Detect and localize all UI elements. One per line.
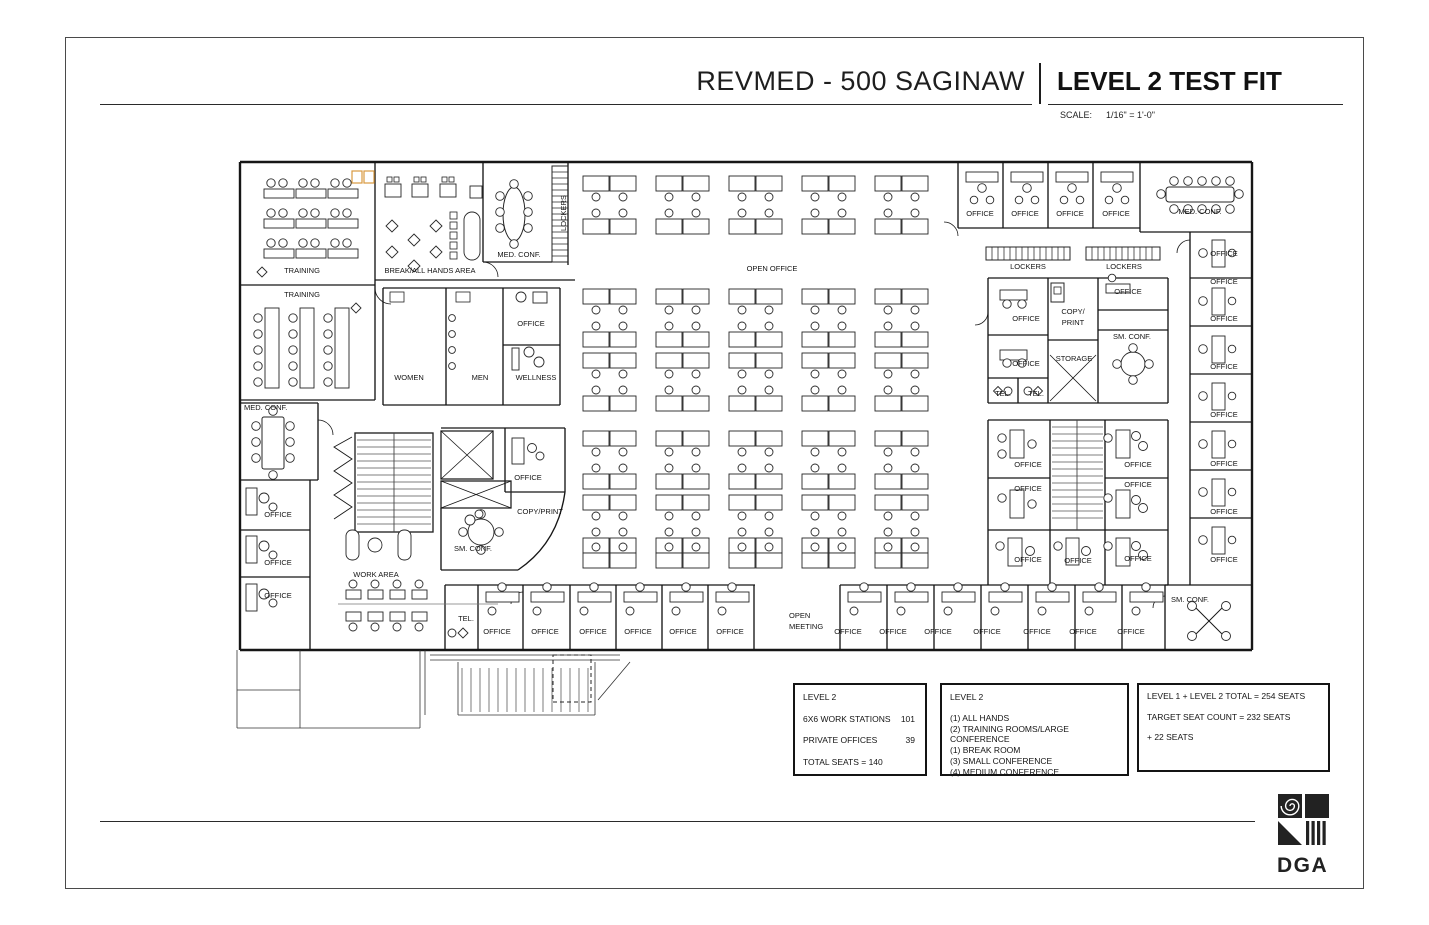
room-label: TRAINING — [284, 290, 320, 299]
row-label: PRIVATE OFFICES — [803, 735, 877, 745]
room-label: MED. CONF. — [244, 403, 287, 412]
room-label: OFFICE — [973, 627, 1001, 636]
room-label: OFFICE — [1210, 555, 1238, 564]
room-label: OFFICE — [1014, 460, 1042, 469]
table-row: 6X6 WORK STATIONS101 — [803, 714, 917, 724]
room-label: OFFICE — [1014, 484, 1042, 493]
table-item: LEVEL 1 + LEVEL 2 TOTAL = 254 SEATS — [1147, 692, 1320, 702]
room-label: OFFICE — [264, 558, 292, 567]
room-label: OFFICE — [1117, 627, 1145, 636]
logo-triangle-icon — [1278, 821, 1302, 845]
room-label: STORAGE — [1056, 354, 1093, 363]
room-label: WOMEN — [394, 373, 424, 382]
room-label: OFFICE — [1064, 556, 1092, 565]
room-label: BREAK/ALL HANDS AREA — [384, 266, 475, 275]
dga-logo-text: DGA — [1277, 854, 1330, 878]
room-label: OFFICE — [716, 627, 744, 636]
table-title: LEVEL 2 — [803, 692, 917, 702]
room-label: OFFICE — [834, 627, 862, 636]
room-label: OFFICE — [483, 627, 511, 636]
room-label: OFFICE — [1102, 209, 1130, 218]
room-label: SM. CONF. — [1113, 332, 1151, 341]
dashed-lines — [553, 655, 591, 702]
table-item: TARGET SEAT COUNT = 232 SEATS — [1147, 713, 1320, 723]
room-label: MED. CONF. — [1178, 207, 1221, 216]
room-label: OPEN — [789, 611, 810, 620]
room-label: OFFICE — [1210, 507, 1238, 516]
room-label: COPY/PRINT — [517, 507, 563, 516]
room-label: LOCKERS — [1106, 262, 1142, 271]
table-total: TOTAL SEATS = 140 — [803, 757, 917, 767]
room-label: WORK AREA — [353, 570, 398, 579]
room-label: COPY/ — [1061, 307, 1085, 316]
room-label: TEL. — [1028, 389, 1044, 398]
room-label: OFFICE — [1012, 314, 1040, 323]
room-label: LOCKERS — [1010, 262, 1046, 271]
room-label: OFFICE — [517, 319, 545, 328]
room-label: OFFICE — [1210, 362, 1238, 371]
footer-rule — [100, 821, 1255, 822]
room-label: SM. CONF. — [454, 544, 492, 553]
room-label: OFFICE — [1012, 359, 1040, 368]
room-label: PRINT — [1062, 318, 1085, 327]
room-label: OFFICE — [1124, 554, 1152, 563]
room-label: OFFICE — [1114, 287, 1142, 296]
table-item: (3) SMALL CONFERENCE — [950, 757, 1119, 767]
room-label: TEL. — [995, 389, 1011, 398]
seat-count-table: LEVEL 26X6 WORK STATIONS101PRIVATE OFFIC… — [793, 683, 927, 776]
room-label: SM. CONF. — [1171, 595, 1209, 604]
table-item: (4) MEDIUM CONFERENCE — [950, 768, 1119, 778]
room-label: MED. CONF. — [497, 250, 540, 259]
row-label: 6X6 WORK STATIONS — [803, 714, 891, 724]
room-label: OFFICE — [1124, 460, 1152, 469]
table-item: (2) TRAINING ROOMS/LARGE CONFERENCE — [950, 725, 1119, 744]
room-label: OFFICE — [1014, 555, 1042, 564]
room-label: WELLNESS — [516, 373, 557, 382]
room-label: OFFICE — [1210, 277, 1238, 286]
room-label: OFFICE — [514, 473, 542, 482]
room-label: OFFICE — [264, 591, 292, 600]
room-label: MEN — [472, 373, 489, 382]
room-label: OFFICE — [1069, 627, 1097, 636]
totals-table: LEVEL 1 + LEVEL 2 TOTAL = 254 SEATSTARGE… — [1137, 683, 1330, 772]
room-label: OFFICE — [1023, 627, 1051, 636]
room-labels: TRAININGTRAININGBREAK/ALL HANDS AREAMED.… — [244, 195, 1238, 636]
room-label: OFFICE — [1056, 209, 1084, 218]
dga-logo-mark — [1276, 792, 1330, 846]
room-label: LOCKERS — [559, 195, 568, 231]
table-row: PRIVATE OFFICES39 — [803, 735, 917, 745]
room-label: OPEN OFFICE — [747, 264, 798, 273]
floor-plan: TRAININGTRAININGBREAK/ALL HANDS AREAMED.… — [0, 0, 1429, 925]
light-lines — [237, 172, 1222, 728]
room-label: OFFICE — [879, 627, 907, 636]
row-value: 101 — [901, 714, 915, 724]
room-label: TEL. — [458, 614, 474, 623]
table-item: + 22 SEATS — [1147, 733, 1320, 743]
logo-solid-square — [1305, 794, 1329, 818]
logo-stripes-icon — [1306, 821, 1326, 845]
room-label: OFFICE — [1210, 314, 1238, 323]
table-item: (1) ALL HANDS — [950, 714, 1119, 724]
room-label: OFFICE — [669, 627, 697, 636]
program-table: LEVEL 2(1) ALL HANDS(2) TRAINING ROOMS/L… — [940, 683, 1129, 776]
room-label: OFFICE — [966, 209, 994, 218]
room-label: OFFICE — [264, 510, 292, 519]
dga-logo: DGA — [1276, 792, 1330, 878]
room-label: OFFICE — [579, 627, 607, 636]
room-label: TRAINING — [284, 266, 320, 275]
table-item: (1) BREAK ROOM — [950, 746, 1119, 756]
row-value: 39 — [906, 735, 915, 745]
room-label: OFFICE — [1011, 209, 1039, 218]
room-label: OFFICE — [1210, 459, 1238, 468]
room-label: OFFICE — [624, 627, 652, 636]
room-label: OFFICE — [1210, 410, 1238, 419]
room-label: MEETING — [789, 622, 823, 631]
room-label: OFFICE — [924, 627, 952, 636]
room-label: OFFICE — [1210, 249, 1238, 258]
room-label: OFFICE — [1124, 480, 1152, 489]
table-title: LEVEL 2 — [950, 692, 1119, 702]
room-label: OFFICE — [531, 627, 559, 636]
